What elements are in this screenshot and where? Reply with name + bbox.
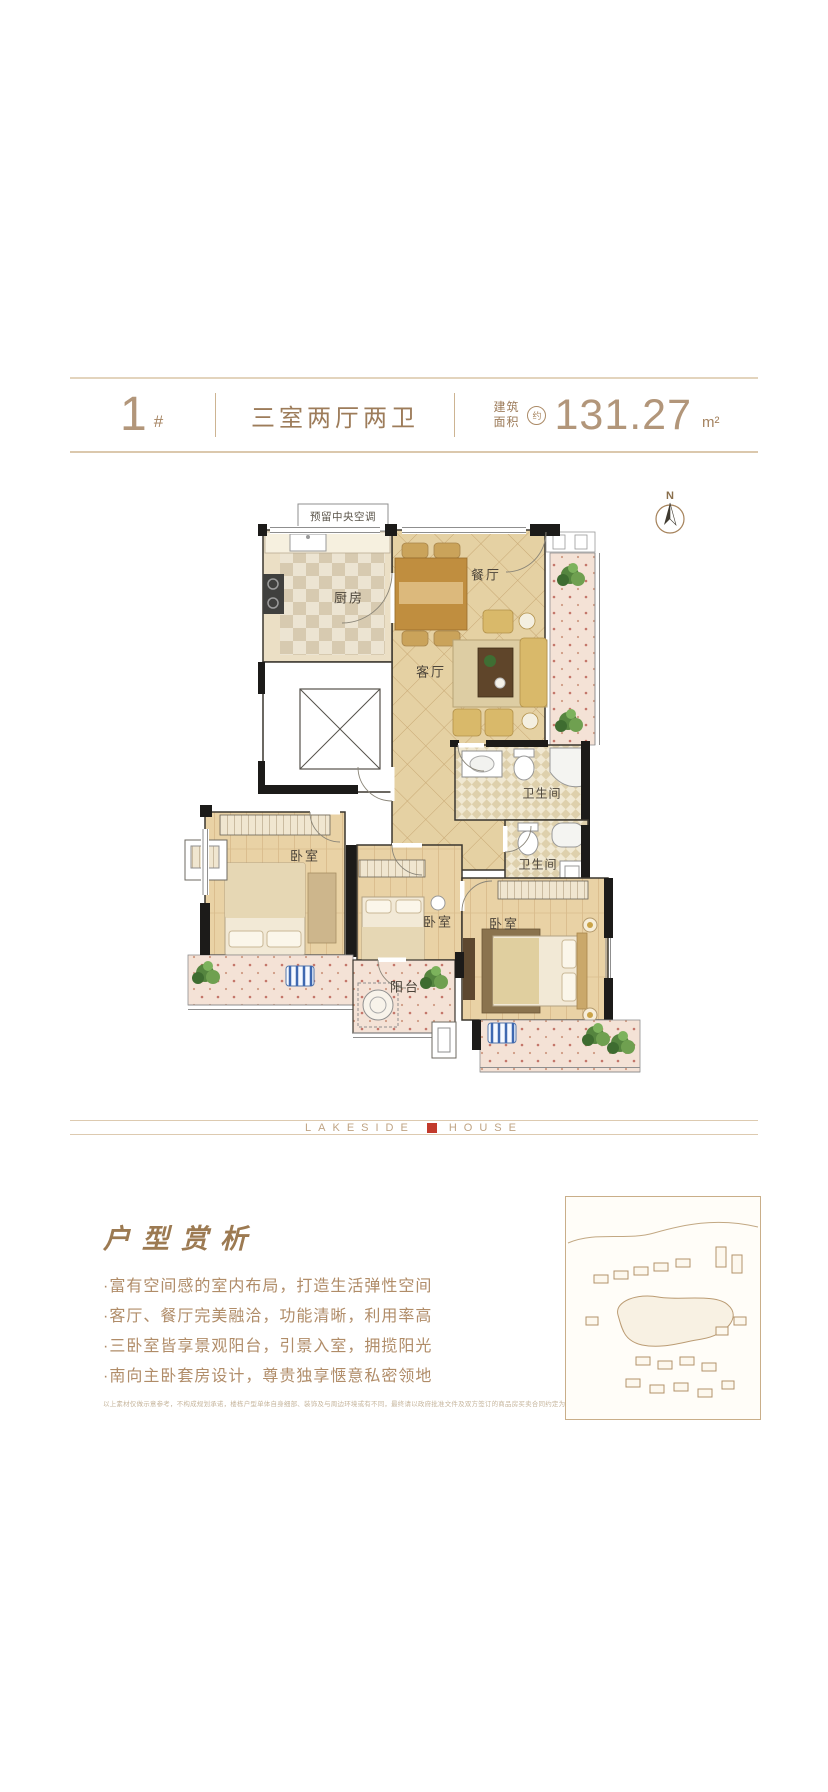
analysis-section: 户型赏析 ·富有空间感的室内布局，打造生活弹性空间 ·客厅、餐厅完美融洽，功能清… <box>103 1217 573 1392</box>
room-label-living: 客厅 <box>416 662 446 681</box>
room-label-bedroom-middle: 卧室 <box>423 912 453 931</box>
analysis-title: 户型赏析 <box>103 1217 573 1256</box>
area-label: 建筑 面积 <box>493 400 519 430</box>
compass-n-label: N <box>666 490 674 502</box>
layout-type: 三室两厅两卫 <box>216 398 454 433</box>
area-label-top: 建筑 <box>493 400 519 415</box>
floor-plan-drawing <box>150 433 710 1088</box>
brand-band: LAKESIDE HOUSE <box>70 1120 758 1135</box>
floor-plan: 预留中央空调 N 厨房 餐厅 客厅 卫生间 卫生间 卧室 卧室 卧室 阳台 <box>150 433 710 1088</box>
building-number-suffix: # <box>154 412 163 432</box>
building-number-value: 1 <box>120 391 147 439</box>
analysis-bullet: ·南向主卧套房设计，尊贵独享惬意私密领地 <box>103 1362 573 1392</box>
room-label-bedroom-master: 卧室 <box>489 914 519 933</box>
page: 1 # 三室两厅两卫 建筑 面积 约 131.27 m² <box>0 0 828 1792</box>
analysis-bullets: ·富有空间感的室内布局，打造生活弹性空间 ·客厅、餐厅完美融洽，功能清晰，利用率… <box>103 1272 573 1392</box>
area-unit: m² <box>702 414 720 431</box>
analysis-bullet: ·三卧室皆享景观阳台，引景入室，拥揽阳光 <box>103 1332 573 1362</box>
brand-seal-icon <box>427 1123 437 1133</box>
room-label-kitchen: 厨房 <box>334 588 364 607</box>
area-label-bottom: 面积 <box>493 415 519 430</box>
analysis-bullet: ·富有空间感的室内布局，打造生活弹性空间 <box>103 1272 573 1302</box>
room-label-balcony: 阳台 <box>390 977 420 996</box>
brand-name-left: LAKESIDE <box>305 1122 415 1134</box>
site-plan <box>565 1196 761 1420</box>
room-label-bedroom-left: 卧室 <box>290 846 320 865</box>
site-plan-drawing <box>566 1197 760 1419</box>
room-label-bathroom-2: 卫生间 <box>518 856 557 873</box>
disclaimer-text: 以上素材仅做示意参考，不构成规划承诺，楼栋户型单体自身细部、装饰及与周边环境或有… <box>103 1398 579 1408</box>
approx-badge: 约 <box>527 406 546 425</box>
room-label-dining: 餐厅 <box>471 565 501 584</box>
room-label-bathroom-1: 卫生间 <box>522 785 561 802</box>
analysis-bullet: ·客厅、餐厅完美融洽，功能清晰，利用率高 <box>103 1302 573 1332</box>
brand-name-right: HOUSE <box>449 1122 523 1134</box>
building-number: 1 # <box>120 391 215 439</box>
ac-note-label: 预留中央空调 <box>298 504 388 531</box>
